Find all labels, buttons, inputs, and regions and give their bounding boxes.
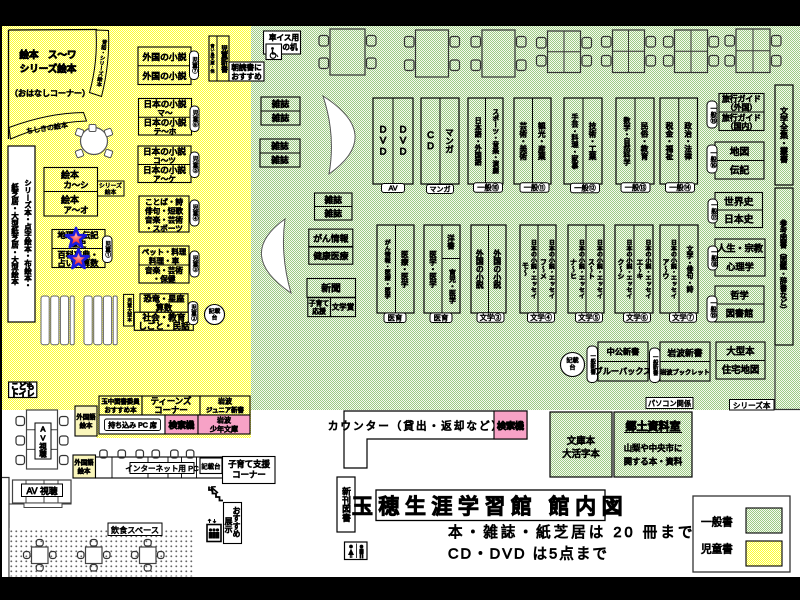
svg-text:日本の小説: 日本の小説 xyxy=(144,98,187,109)
svg-text:子育て支援: 子育て支援 xyxy=(228,459,270,469)
svg-text:一般⑰: 一般⑰ xyxy=(710,202,717,221)
svg-text:ブルーバックス: ブルーバックス xyxy=(595,366,652,376)
svg-text:おすすめ本: おすすめ本 xyxy=(105,405,138,414)
svg-text:記載台: 記載台 xyxy=(201,462,220,471)
svg-text:の机: の机 xyxy=(282,42,298,52)
svg-text:AV: AV xyxy=(388,184,397,193)
svg-text:絵本: 絵本 xyxy=(61,169,79,180)
svg-text:洋書: 洋書 xyxy=(446,234,455,250)
svg-text:岩波新書: 岩波新書 xyxy=(667,347,702,358)
svg-text:絵本: 絵本 xyxy=(105,188,117,196)
svg-text:地図: 地図 xyxy=(730,145,750,158)
svg-text:医療・医学: 医療・医学 xyxy=(400,251,409,288)
svg-text:日本の小説・エッセイ: 日本の小説・エッセイ xyxy=(548,240,555,299)
svg-text:しごと・民話: しごと・民話 xyxy=(138,320,190,331)
svg-text:シリーズ本・点字絵本・布絵本・: シリーズ本・点字絵本・布絵本・ xyxy=(24,179,33,289)
svg-text:（おはなしコーナー）: （おはなしコーナー） xyxy=(10,89,90,98)
svg-text:文学④: 文学④ xyxy=(530,313,552,322)
svg-text:一般⑪: 一般⑪ xyxy=(524,183,546,192)
svg-text:外国語: 外国語 xyxy=(76,412,96,421)
svg-text:車イス用: 車イス用 xyxy=(269,32,299,42)
svg-text:検索機: 検索機 xyxy=(497,420,524,431)
svg-text:ア〜オ: ア〜オ xyxy=(63,205,88,215)
svg-text:マ〜: マ〜 xyxy=(157,109,173,118)
svg-text:児童④: 児童④ xyxy=(192,204,199,223)
svg-text:台: 台 xyxy=(212,314,218,322)
svg-text:がん情報・医療・医学: がん情報・医療・医学 xyxy=(383,239,390,299)
svg-text:絵本 ス〜ワ: 絵本 ス〜ワ xyxy=(19,49,76,61)
svg-text:コーナー: コーナー xyxy=(232,470,266,480)
svg-text:カ〜シ: カ〜シ xyxy=(63,180,88,190)
svg-text:記載: 記載 xyxy=(209,307,221,315)
svg-text:テ〜ホ: テ〜ホ xyxy=(154,127,177,136)
svg-text:（国内）: （国内） xyxy=(726,121,757,131)
svg-text:絵本: 絵本 xyxy=(80,421,93,430)
svg-text:雑誌: 雑誌 xyxy=(324,207,342,218)
svg-text:料理・車: 料理・車 xyxy=(149,256,180,266)
svg-text:応援: 応援 xyxy=(312,307,326,316)
svg-text:岩波: 岩波 xyxy=(217,416,231,425)
svg-text:文学賞: 文学賞 xyxy=(332,303,354,312)
svg-text:文学③: 文学③ xyxy=(480,313,502,322)
svg-text:雑誌: 雑誌 xyxy=(272,98,290,109)
svg-text:音楽・芸術: 音楽・芸術 xyxy=(145,215,183,225)
svg-text:人生・宗教: 人生・宗教 xyxy=(717,243,763,254)
svg-text:マンガ: マンガ xyxy=(430,185,451,194)
svg-text:青い鳥文庫・他: 青い鳥文庫・他 xyxy=(210,43,216,75)
svg-text:児童⑦: 児童⑦ xyxy=(191,56,198,75)
svg-text:大活字本: 大活字本 xyxy=(562,448,600,459)
svg-text:一般書: 一般書 xyxy=(701,516,733,529)
svg-text:文学⑤: 文学⑤ xyxy=(578,313,600,322)
svg-text:文学全集・叢書: 文学全集・叢書 xyxy=(780,106,789,164)
svg-text:一般⑭: 一般⑭ xyxy=(669,183,691,192)
svg-text:雑誌: 雑誌 xyxy=(272,112,290,123)
svg-text:シリーズ: シリーズ xyxy=(99,182,122,190)
svg-text:ペット・料理: ペット・料理 xyxy=(142,248,187,257)
svg-text:旅行ガイド: 旅行ガイド xyxy=(722,94,761,104)
svg-text:インターネット用 PC: インターネット用 PC xyxy=(125,464,199,473)
svg-text:がん情報: がん情報 xyxy=(313,233,348,244)
svg-text:児童⑥: 児童⑥ xyxy=(192,109,199,128)
svg-text:おすすめ: おすすめ xyxy=(231,72,261,81)
svg-text:トイレ: トイレ xyxy=(11,390,35,399)
svg-text:持ち込み PC 席: 持ち込み PC 席 xyxy=(108,421,157,430)
svg-text:少年文庫: 少年文庫 xyxy=(210,425,238,434)
svg-text:関する本・資料: 関する本・資料 xyxy=(624,457,683,467)
svg-text:日本の小説・エッセイ: 日本の小説・エッセイ xyxy=(625,240,632,299)
svg-text:絵本: 絵本 xyxy=(61,194,79,205)
svg-text:中公新書: 中公新書 xyxy=(607,347,640,357)
svg-text:パソコン関係: パソコン関係 xyxy=(648,399,691,408)
svg-text:伝記: 伝記 xyxy=(730,163,750,176)
svg-text:絵本: 絵本 xyxy=(78,466,91,475)
svg-text:展示: 展示 xyxy=(224,517,233,533)
svg-text:シリーズ絵本: シリーズ絵本 xyxy=(20,63,77,75)
svg-text:心理学: 心理学 xyxy=(726,261,754,272)
svg-text:玉穂生涯学習館 館内図: 玉穂生涯学習館 館内図 xyxy=(352,495,628,519)
svg-text:恐竜・星座: 恐竜・星座 xyxy=(144,294,185,304)
svg-text:ことば・詩: ことば・詩 xyxy=(145,197,183,207)
svg-text:観光・産業: 観光・産業 xyxy=(537,121,546,161)
svg-text:CD・DVD は5点まで: CD・DVD は5点まで xyxy=(448,546,609,563)
svg-text:・保健: ・保健 xyxy=(153,274,176,284)
svg-text:文庫本: 文庫本 xyxy=(567,435,596,446)
svg-text:外国の小説: 外国の小説 xyxy=(143,51,187,62)
svg-text:児童⑤: 児童⑤ xyxy=(192,155,199,174)
svg-text:参考図書（図鑑・辞書など）: 参考図書（図鑑・辞書など） xyxy=(780,219,789,313)
svg-text:算数: 算数 xyxy=(156,303,172,313)
svg-text:新刊図書: 新刊図書 xyxy=(341,486,351,523)
svg-text:DVD: DVD xyxy=(378,125,389,158)
svg-text:健康医療: 健康医療 xyxy=(313,250,348,261)
svg-text:民俗・教育: 民俗・教育 xyxy=(640,122,649,161)
svg-text:医育: 医育 xyxy=(388,313,403,322)
svg-text:本・雑誌・紙芝居は 20 冊まで: 本・雑誌・紙芝居は 20 冊まで xyxy=(448,524,695,541)
svg-text:政治・法律: 政治・法律 xyxy=(683,121,692,161)
svg-text:台: 台 xyxy=(569,364,575,372)
svg-text:郷土資料室: 郷土資料室 xyxy=(626,419,681,433)
svg-text:文学⑥: 文学⑥ xyxy=(626,313,648,322)
svg-text:文学⑦: 文学⑦ xyxy=(672,313,694,322)
svg-text:税金・福祉: 税金・福祉 xyxy=(665,121,674,161)
svg-text:世界史: 世界史 xyxy=(724,196,754,208)
svg-text:外国語: 外国語 xyxy=(74,458,94,467)
svg-text:住宅地図: 住宅地図 xyxy=(722,364,760,375)
svg-text:児童書: 児童書 xyxy=(701,543,733,556)
svg-text:外国の小説: 外国の小説 xyxy=(493,248,502,289)
svg-text:シリーズ本: シリーズ本 xyxy=(733,400,771,410)
svg-text:子育て: 子育て xyxy=(309,299,329,308)
svg-text:おすすめ: おすすめ xyxy=(232,506,241,537)
svg-text:DVD: DVD xyxy=(398,125,409,158)
svg-text:一般⑲: 一般⑲ xyxy=(709,300,716,319)
svg-text:マンガ: マンガ xyxy=(445,128,455,154)
svg-text:コ〜ツ: コ〜ツ xyxy=(153,156,176,165)
svg-text:一般⑬: 一般⑬ xyxy=(625,183,647,192)
svg-text:外国の小説: 外国の小説 xyxy=(143,70,187,81)
svg-text:俳句・短歌: 俳句・短歌 xyxy=(145,206,183,216)
svg-text:AV視聴: AV視聴 xyxy=(38,425,47,459)
svg-text:カウンター（貸出・返却など）: カウンター（貸出・返却など） xyxy=(328,420,504,433)
svg-text:日本の小説・エッセイ: 日本の小説・エッセイ xyxy=(530,240,537,299)
svg-text:児童③: 児童③ xyxy=(192,255,199,274)
svg-text:日本の小説: 日本の小説 xyxy=(143,146,186,157)
svg-text:日本史: 日本史 xyxy=(724,212,754,225)
svg-text:玉中図書委員: 玉中図書委員 xyxy=(101,397,140,406)
svg-text:児童大型本: 児童大型本 xyxy=(126,297,131,323)
svg-text:新聞: 新聞 xyxy=(321,282,341,295)
svg-text:・スポーツ: ・スポーツ xyxy=(145,224,183,233)
svg-text:一般新書: 一般新書 xyxy=(652,354,659,377)
svg-text:日本の小説: 日本の小説 xyxy=(144,117,187,128)
svg-text:ア〜ケ: ア〜ケ xyxy=(153,175,176,184)
svg-text:紙芝居・大型紙芝居・大型絵本: 紙芝居・大型紙芝居・大型絵本 xyxy=(11,182,20,286)
svg-text:音楽・芸術: 音楽・芸術 xyxy=(145,265,183,275)
svg-text:外国の小説: 外国の小説 xyxy=(475,248,484,289)
svg-text:日本の小説・エッセイ: 日本の小説・エッセイ xyxy=(644,240,651,299)
svg-text:医学・医学: 医学・医学 xyxy=(428,251,437,288)
svg-text:哲学: 哲学 xyxy=(730,289,748,300)
svg-text:朝読書に: 朝読書に xyxy=(231,62,261,72)
svg-text:一般⑮: 一般⑮ xyxy=(709,106,716,125)
svg-text:大型本: 大型本 xyxy=(726,346,755,357)
svg-text:芸術・美術: 芸術・美術 xyxy=(519,121,528,161)
svg-text:岩波: 岩波 xyxy=(218,397,232,406)
svg-text:CD: CD xyxy=(425,130,436,152)
svg-text:AV 視聴: AV 視聴 xyxy=(26,486,57,496)
svg-text:技術・工業: 技術・工業 xyxy=(588,121,597,161)
svg-text:記載: 記載 xyxy=(566,357,578,365)
svg-text:日本の小説・エッセイ: 日本の小説・エッセイ xyxy=(596,240,603,299)
svg-text:コーナー: コーナー xyxy=(154,405,188,415)
svg-text:日本の小説・エッセイ: 日本の小説・エッセイ xyxy=(578,240,585,299)
svg-text:雑誌: 雑誌 xyxy=(271,140,289,151)
svg-text:一般⑩: 一般⑩ xyxy=(477,183,499,192)
svg-text:日本の小説: 日本の小説 xyxy=(143,164,186,175)
svg-text:山梨や中央市に: 山梨や中央市に xyxy=(624,443,683,453)
svg-text:一般⑫: 一般⑫ xyxy=(574,184,596,193)
svg-text:日本の小説・エッセイ: 日本の小説・エッセイ xyxy=(670,240,677,299)
svg-text:児童②: 児童② xyxy=(190,304,197,323)
svg-text:図書館: 図書館 xyxy=(726,307,754,318)
svg-text:岩波ブックレット: 岩波ブックレット xyxy=(660,369,710,377)
svg-text:一般⑱: 一般⑱ xyxy=(710,249,717,268)
svg-text:雑誌: 雑誌 xyxy=(271,154,289,165)
svg-text:飲食スペース: 飲食スペース xyxy=(111,525,159,535)
svg-text:ジュニア新書: ジュニア新書 xyxy=(206,405,245,414)
svg-text:医育: 医育 xyxy=(434,313,449,322)
svg-text:児童①: 児童① xyxy=(104,240,111,259)
svg-text:旅行ガイド: 旅行ガイド xyxy=(722,113,761,123)
svg-text:雑誌: 雑誌 xyxy=(324,194,342,205)
svg-text:（外国）: （外国） xyxy=(726,102,757,112)
svg-text:検索機: 検索機 xyxy=(169,419,195,430)
svg-text:一般⑯: 一般⑯ xyxy=(709,150,716,169)
